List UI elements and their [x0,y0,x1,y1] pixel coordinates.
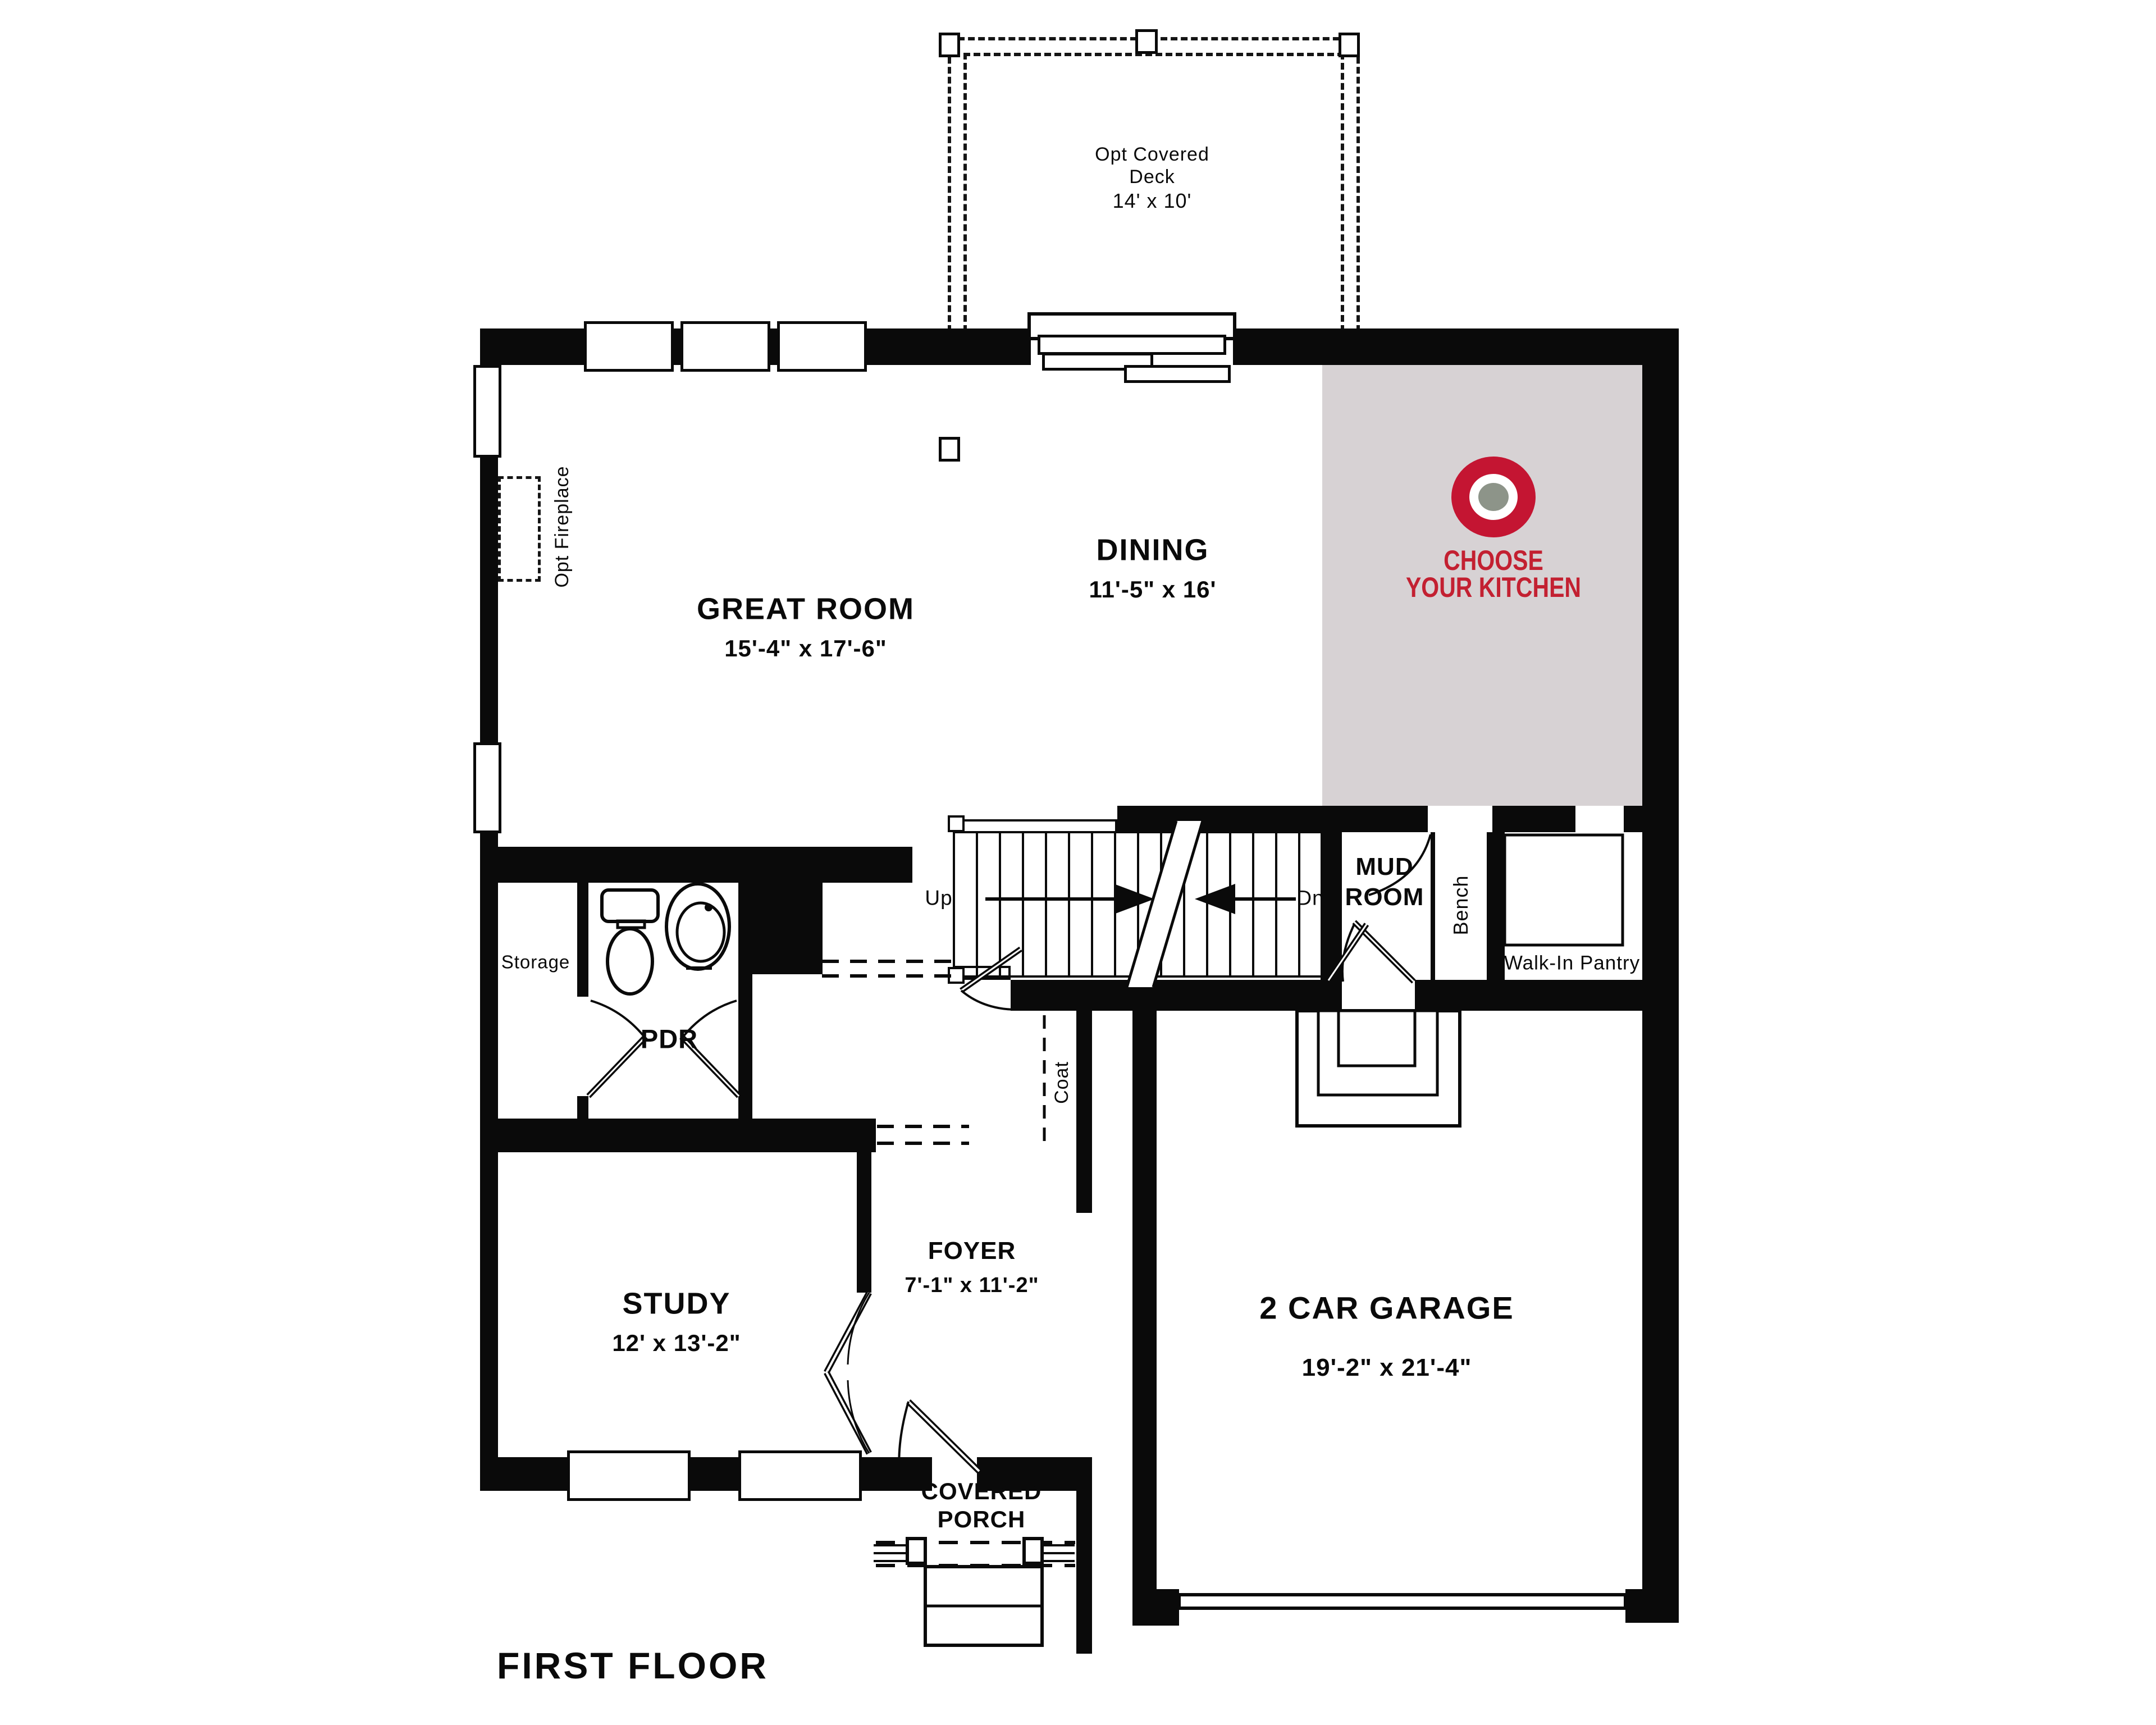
garage-dims: 19'-2" x 21'-4" [1302,1355,1472,1381]
dining-dims: 11'-5" x 16' [1089,577,1216,602]
front-door-leaf-inner [908,1402,979,1471]
mud-room-label-line2: ROOM [1345,884,1424,910]
page-title: FIRST FLOOR [497,1644,769,1687]
garage-label: 2 CAR GARAGE [1259,1292,1514,1325]
great-room-dims: 15'-4" x 17'-6" [724,636,887,661]
hall-door-arc [961,991,1017,1010]
basement-door-leaf-inner [1328,924,1367,980]
pdr-toilet-seat-hinge [618,921,645,928]
porch-label-line2: PORCH [938,1507,1026,1532]
choose-kitchen-cta-line2[interactable]: YOUR KITCHEN [1406,571,1581,604]
storage-label: Storage [501,953,570,973]
pantry-shelf [1505,835,1623,945]
pdr-door-leaf-inner [588,1037,646,1096]
foyer-dims: 7'-1" x 11'-2" [905,1275,1039,1297]
front-door-arc [899,1402,908,1472]
symbol-overlay [0,0,2156,1725]
stair-dn-arrowhead [1195,884,1235,914]
stair-up-label: Up [925,888,952,910]
floor-plan: Opt Covered Deck 14' x 10' Opt Fireplace [0,0,2156,1725]
pdr-toilet-tank [602,890,658,921]
kitchen-logo-dot [1478,483,1509,511]
study-dims: 12' x 13'-2" [612,1331,741,1356]
hall-door-leaf-inner [961,949,1021,991]
pdr-door-arc [591,1001,647,1040]
pdr-toilet-bowl [607,929,652,994]
garage-steps [1339,1011,1415,1066]
bench-label: Bench [1450,875,1472,935]
pdr-sink-basin [677,903,724,961]
stair-dn-label: Dn [1296,888,1324,910]
coat-label: Coat [1052,1061,1072,1104]
porch-label-line1: COVERED [921,1479,1042,1504]
stair-up-arrowhead [1114,884,1154,914]
pdr-sink-faucet [705,903,712,911]
pdr-label: PDR [641,1025,698,1052]
foyer-label: FOYER [928,1238,1016,1264]
dining-label: DINING [1097,535,1209,567]
pantry-label: Walk-In Pantry [1504,953,1640,974]
pdr-sink-outer [666,884,729,969]
study-label: STUDY [622,1288,730,1320]
porch-post [1024,1539,1042,1563]
porch-post [907,1539,925,1563]
great-room-label: GREAT ROOM [697,594,915,626]
mud-room-label-line1: MUD [1355,854,1413,880]
